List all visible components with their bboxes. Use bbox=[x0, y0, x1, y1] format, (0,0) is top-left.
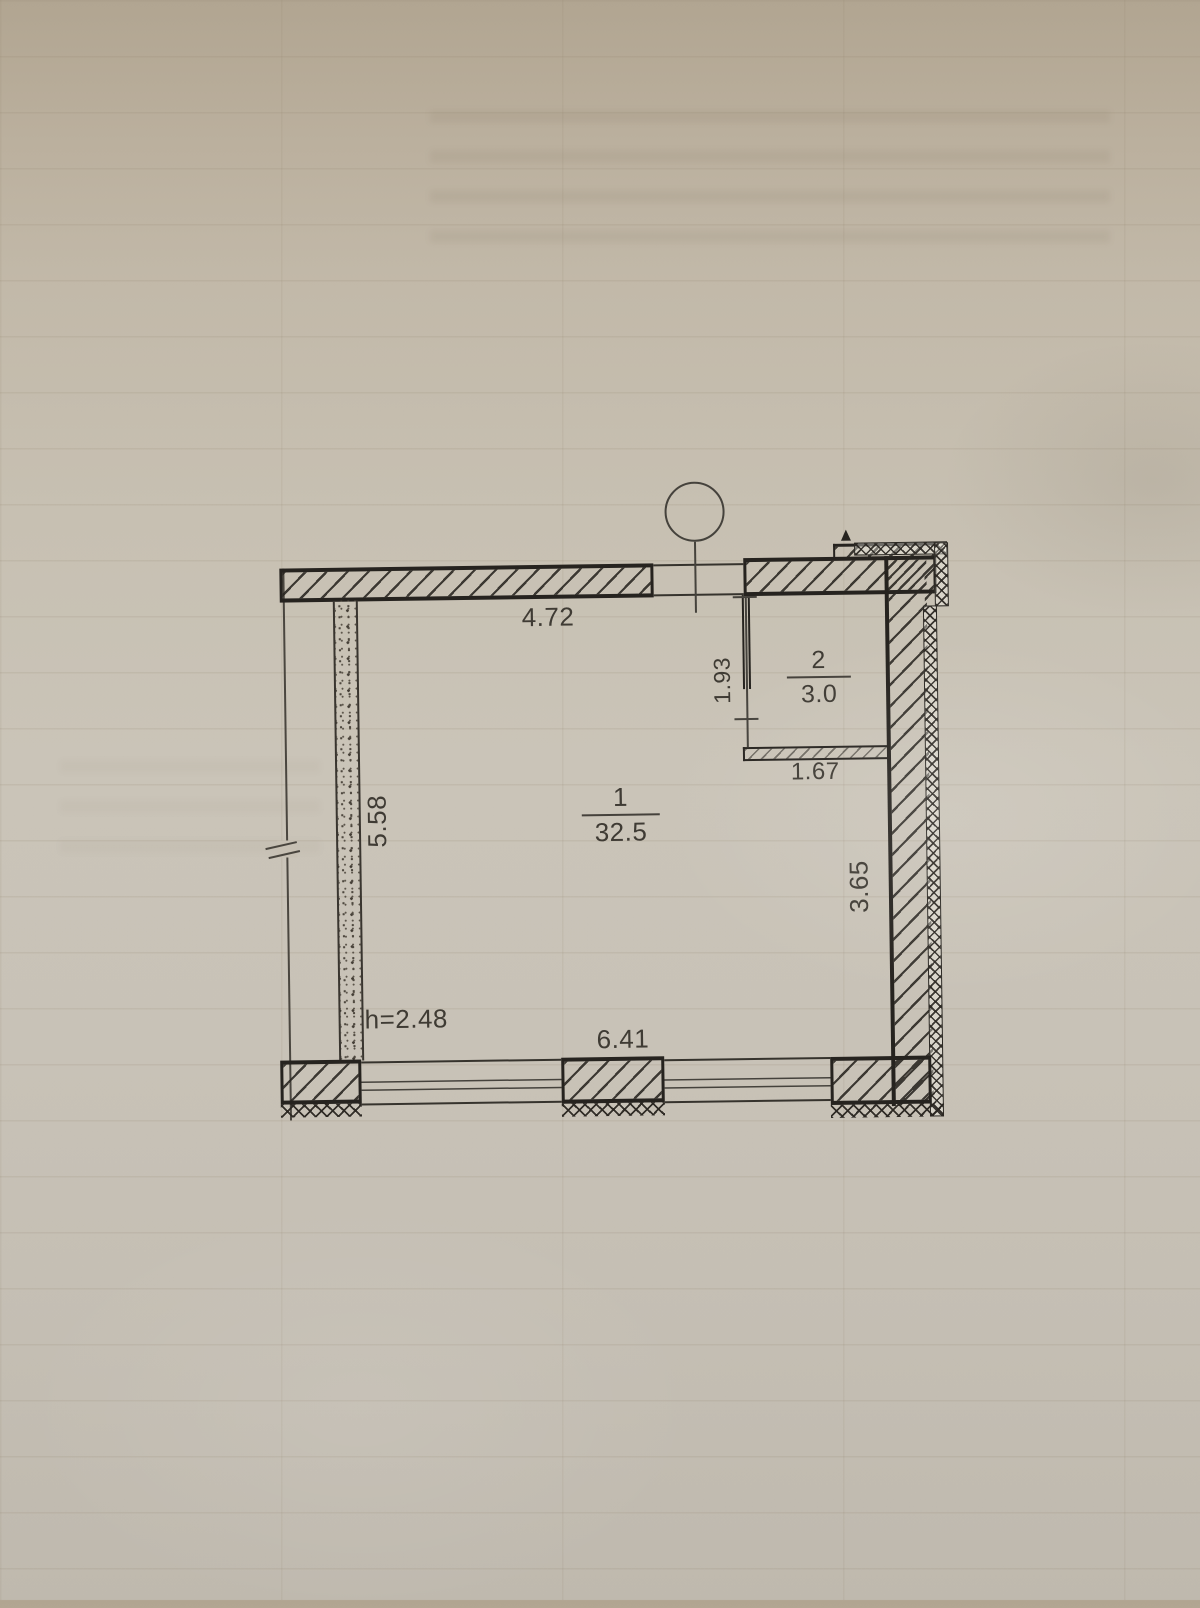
room2-number: 2 bbox=[786, 647, 850, 674]
room1-number: 1 bbox=[581, 783, 659, 811]
room1-area: 32.5 bbox=[582, 819, 660, 847]
dim-bottom-label: 6.41 bbox=[581, 1025, 665, 1052]
room2-label: 2 3.0 bbox=[786, 647, 851, 708]
room2-fraction-bar bbox=[787, 676, 851, 679]
bottom-pier-right bbox=[830, 1056, 932, 1105]
bottom-pier-right-footing bbox=[831, 1103, 944, 1118]
bottom-pier-left bbox=[280, 1059, 362, 1104]
room1-label: 1 32.5 bbox=[581, 783, 660, 847]
dimension-tick bbox=[734, 718, 758, 720]
bottom-pier-left-footing bbox=[281, 1103, 362, 1117]
window-left bbox=[361, 1059, 562, 1106]
dim-left-label: 5.58 bbox=[363, 786, 388, 856]
floor-plan-drawing: 4.72 5.58 1.93 1.67 3.65 6.41 h=2.48 1 3… bbox=[0, 0, 1200, 1608]
bottom-pier-middle bbox=[561, 1056, 665, 1103]
dim-right-label: 3.65 bbox=[845, 851, 870, 921]
wall-step-arrow bbox=[841, 530, 851, 541]
dim-room2-width-label: 1.67 bbox=[779, 760, 851, 785]
dim-top-label: 4.72 bbox=[502, 603, 594, 630]
wall-opening bbox=[653, 563, 743, 596]
top-wall-left bbox=[279, 563, 653, 602]
left-partition-wall bbox=[333, 600, 364, 1060]
photographed-floor-plan-sheet: { "document": { "kind": "floor plan tech… bbox=[0, 0, 1200, 1600]
dim-room2-depth-label: 1.93 bbox=[710, 648, 735, 712]
bottom-pier-middle-footing bbox=[562, 1102, 665, 1116]
room2-area: 3.0 bbox=[787, 681, 851, 708]
window-right bbox=[664, 1057, 831, 1103]
dimension-tick bbox=[733, 596, 757, 598]
ceiling-height-note: h=2.48 bbox=[364, 1005, 476, 1033]
circle-symbol bbox=[664, 481, 725, 542]
right-wall-insulation-upper bbox=[934, 542, 949, 606]
